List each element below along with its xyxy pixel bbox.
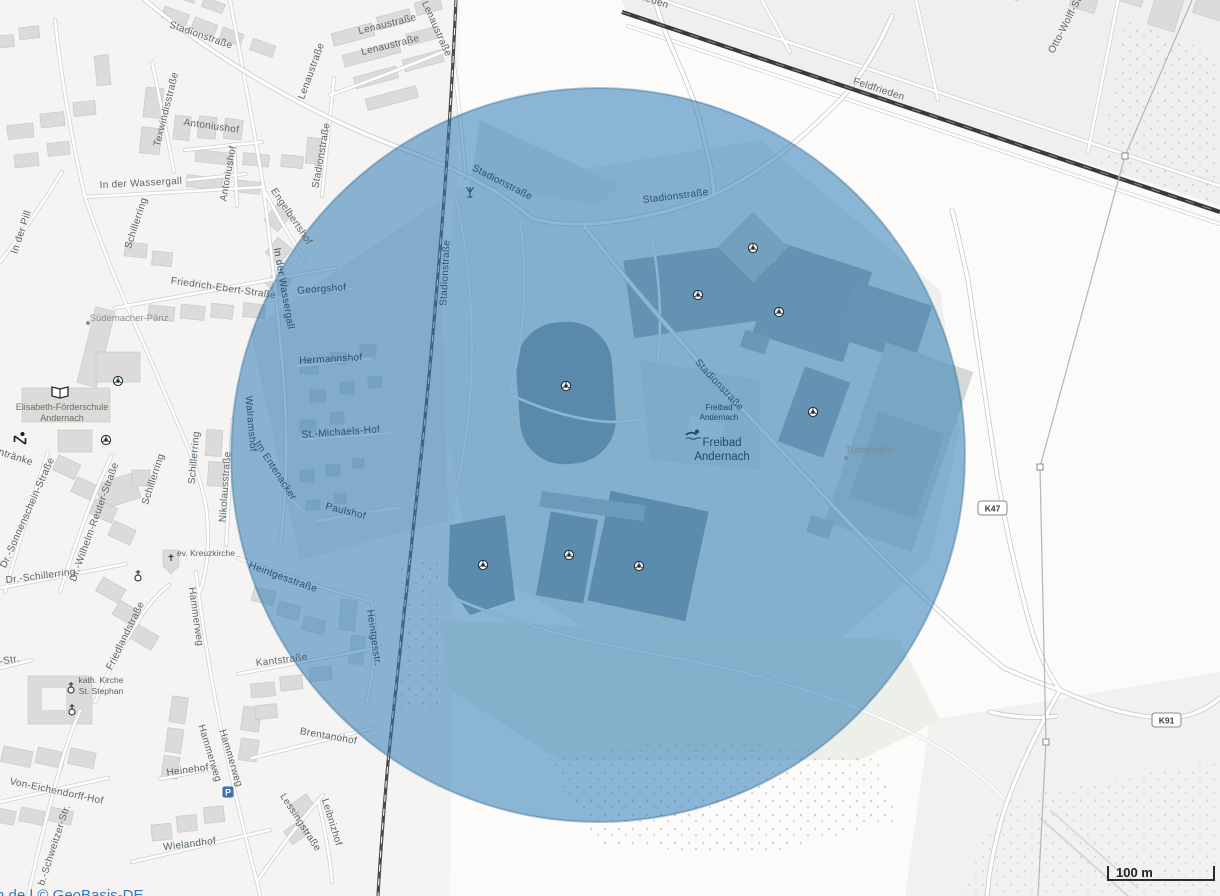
soccer-ball-icon bbox=[113, 376, 122, 385]
poi-label-school: Elisabeth-Förderschule bbox=[16, 402, 109, 412]
church-cross-icon bbox=[68, 682, 74, 693]
poi-dot bbox=[844, 456, 848, 460]
map-canvas[interactable]: Lenaustraße Lenaustraße Lenaustraße Lena… bbox=[0, 0, 1220, 896]
poi-label-freibad-small: Freibad bbox=[705, 403, 732, 412]
map-attribution[interactable]: n.de | © GeoBasis-DE bbox=[0, 887, 144, 896]
soccer-ball-icon bbox=[748, 243, 757, 252]
soccer-ball-icon bbox=[808, 407, 817, 416]
poi-label-kath-kirche: St. Stephan bbox=[79, 686, 124, 696]
soccer-ball-icon bbox=[693, 290, 702, 299]
road-ref-k91: K91 bbox=[1159, 716, 1175, 726]
parking-icon: P bbox=[223, 787, 234, 798]
road-ref-badge: K47 bbox=[978, 501, 1007, 515]
poi-label-freibad: Freibad bbox=[703, 437, 742, 449]
road-ref-badge: K91 bbox=[1152, 713, 1181, 727]
soccer-ball-icon bbox=[564, 550, 573, 559]
soccer-ball-icon bbox=[478, 560, 487, 569]
poi-label-freibad-small: Andernach bbox=[700, 413, 739, 422]
poi-label-kreuzkirche: ev. Kreuzkirche bbox=[177, 548, 235, 558]
road-ref-k47: K47 bbox=[985, 504, 1001, 514]
school-book-icon bbox=[52, 387, 68, 398]
svg-text:P: P bbox=[225, 788, 231, 798]
poi-label-suedemacher-paenz: Südemacher-Pänz bbox=[90, 313, 169, 324]
poi-label-freibad: Andernach bbox=[694, 451, 750, 463]
soccer-ball-icon bbox=[101, 435, 110, 444]
scale-bar-label: 100 m bbox=[1116, 865, 1153, 880]
soccer-ball-icon bbox=[561, 381, 570, 390]
soccer-ball-icon bbox=[774, 307, 783, 316]
poi-dot bbox=[86, 321, 90, 325]
poi-label-trampolino: Trampolino bbox=[845, 445, 895, 456]
poi-label-school: Andernach bbox=[40, 413, 84, 423]
map-svg: Lenaustraße Lenaustraße Lenaustraße Lena… bbox=[0, 0, 1220, 896]
church-cross-icon bbox=[69, 704, 75, 715]
poi-label-kath-kirche: kath. Kirche bbox=[79, 675, 124, 685]
wayside-cross-icon bbox=[135, 570, 141, 581]
soccer-ball-icon bbox=[634, 561, 643, 570]
